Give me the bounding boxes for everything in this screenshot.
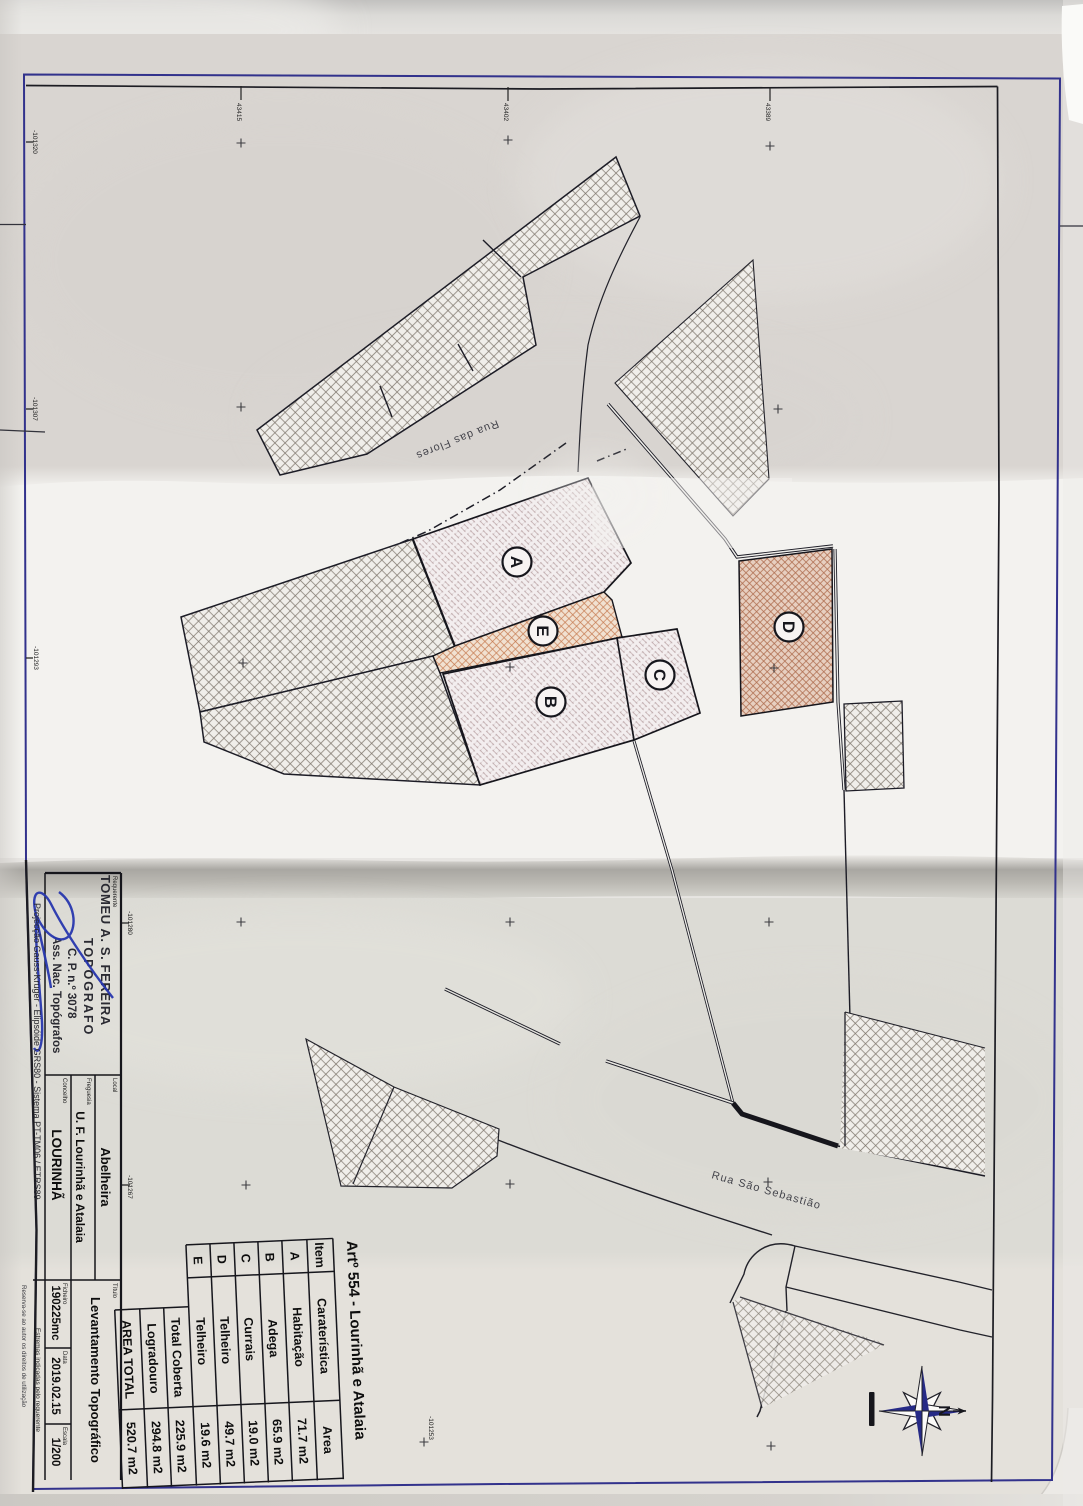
svg-text:71.7 m2: 71.7 m2: [295, 1418, 311, 1464]
svg-text:294.8 m2: 294.8 m2: [149, 1421, 165, 1474]
svg-text:Levantamento Topográfico: Levantamento Topográfico: [88, 1297, 103, 1463]
svg-text:LOURINHÃ: LOURINHÃ: [49, 1129, 64, 1200]
svg-text:-101267: -101267: [126, 1175, 133, 1199]
svg-text:A: A: [507, 556, 526, 568]
svg-text:Estremas indicadas pelo requer: Estremas indicadas pelo requerente: [34, 1328, 41, 1432]
svg-text:B: B: [541, 696, 560, 708]
svg-text:Adega: Adega: [265, 1319, 281, 1359]
svg-text:Telheiro: Telheiro: [193, 1317, 209, 1366]
svg-text:Título: Título: [111, 1283, 117, 1299]
svg-text:E: E: [190, 1256, 204, 1265]
svg-text:Reserva-se ao autor os direito: Reserva-se ao autor os direitos de utili…: [20, 1285, 27, 1408]
svg-text:225.9 m2: 225.9 m2: [173, 1420, 189, 1473]
svg-text:43415: 43415: [235, 103, 242, 121]
svg-text:Currais: Currais: [241, 1317, 257, 1361]
svg-text:Item: Item: [312, 1242, 327, 1268]
svg-text:Telheiro: Telheiro: [217, 1316, 233, 1365]
svg-text:B: B: [262, 1252, 276, 1262]
svg-text:E: E: [533, 625, 552, 636]
svg-text:520.7 m2: 520.7 m2: [124, 1422, 140, 1475]
svg-text:190225mc: 190225mc: [49, 1286, 61, 1342]
svg-text:-101307: -101307: [31, 397, 38, 421]
svg-text:D: D: [779, 621, 798, 633]
svg-text:Area: Area: [320, 1426, 335, 1455]
svg-text:65.9 m2: 65.9 m2: [270, 1419, 286, 1465]
svg-text:C: C: [238, 1253, 252, 1263]
svg-text:-101320: -101320: [31, 130, 38, 154]
svg-text:Projecção Gauss-Krüger - Elips: Projecção Gauss-Krüger - Elipsóide GRS80…: [32, 903, 42, 1200]
svg-text:43389: 43389: [764, 103, 771, 121]
svg-text:49.7 m2: 49.7 m2: [222, 1421, 238, 1467]
svg-text:Local: Local: [111, 1078, 117, 1092]
svg-text:Concelho: Concelho: [61, 1078, 67, 1104]
svg-text:TOPÓGRAFO: TOPÓGRAFO: [81, 938, 96, 1036]
svg-text:C: C: [650, 669, 669, 681]
svg-text:Freguesia: Freguesia: [85, 1078, 91, 1105]
svg-text:U. F. Lourinhã e Atalaia: U. F. Lourinhã e Atalaia: [73, 1111, 87, 1243]
svg-text:Abelheira: Abelheira: [98, 1147, 113, 1207]
svg-text:2019.02.15: 2019.02.15: [49, 1357, 61, 1415]
svg-text:-101280: -101280: [126, 911, 133, 935]
svg-text:-101253: -101253: [427, 1416, 434, 1440]
svg-text:43402: 43402: [502, 103, 509, 121]
svg-text:A: A: [287, 1251, 301, 1261]
svg-text:19.6 m2: 19.6 m2: [198, 1422, 214, 1468]
svg-text:Habitação: Habitação: [290, 1307, 307, 1368]
svg-text:C. P. n.º 3078: C. P. n.º 3078: [65, 948, 77, 1019]
svg-text:D: D: [214, 1254, 228, 1264]
svg-text:N: N: [935, 1405, 952, 1417]
svg-text:1/200: 1/200: [49, 1438, 61, 1467]
svg-text:Ass. Nac. Topógrafos: Ass. Nac. Topógrafos: [50, 936, 62, 1053]
svg-text:-101293: -101293: [32, 646, 39, 670]
svg-text:TOMEU A. S. FEREIRA: TOMEU A. S. FEREIRA: [98, 875, 113, 1026]
svg-text:19.0 m2: 19.0 m2: [246, 1420, 262, 1466]
